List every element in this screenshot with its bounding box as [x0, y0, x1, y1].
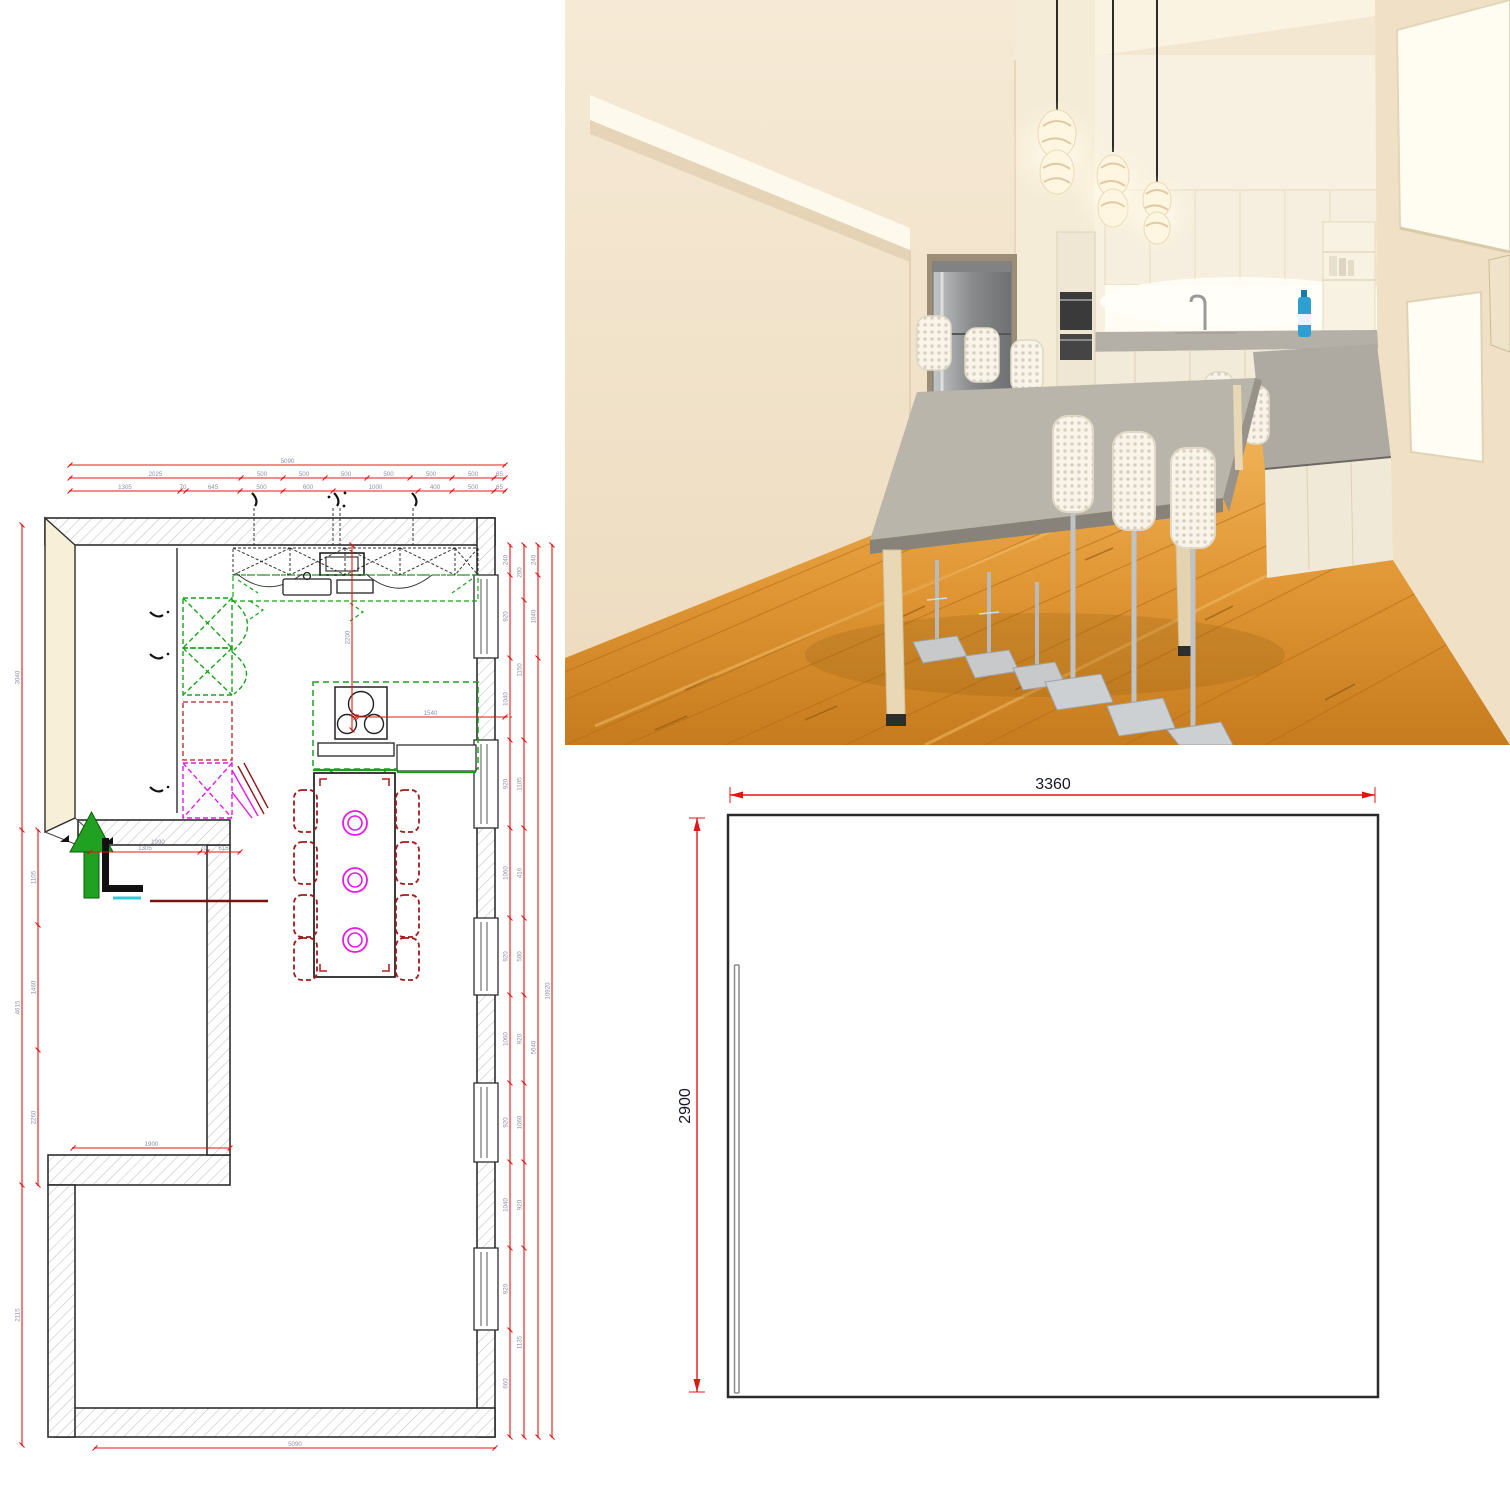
window-counter [1253, 344, 1393, 578]
tall-cabinet-column [183, 598, 248, 695]
dimension-label: 615 [218, 845, 229, 852]
dimension-chain: 2001150110541650092010609201135 [517, 543, 527, 1440]
dimension-label: 500 [257, 471, 268, 478]
dimension-chain: 130570645500600100040050065 [68, 484, 508, 494]
dimension-label: 920 [503, 778, 510, 789]
dimension-label: 500 [341, 471, 352, 478]
window-light [1397, 0, 1510, 252]
dimension-label: 1105 [31, 870, 38, 884]
dimension-chain: 2409201040920106092010609201040920660 [503, 543, 513, 1440]
dimension-label: 920 [517, 1033, 524, 1044]
dimension-label: 65 [496, 471, 503, 478]
dimension-label: 1305 [138, 845, 152, 852]
corner-cabinet [183, 763, 268, 818]
dimension-label: 1040 [531, 609, 538, 623]
dimension-label: 2260 [31, 1110, 38, 1124]
dimension-label: 660 [503, 1378, 510, 1389]
dimension-label: 920 [503, 1117, 510, 1128]
exterior-walls [45, 518, 495, 1437]
dimension-label: 240 [503, 554, 510, 565]
dimension-label: 600 [303, 484, 314, 491]
dimension-chain: 10920 [545, 543, 555, 1440]
dimension-label: 70 [180, 484, 187, 491]
dimension-label: 1060 [503, 1032, 510, 1046]
elevation-width-label: 3360 [1035, 776, 1071, 793]
wall-light-symbol [150, 611, 169, 792]
dimension-label: 1540 [424, 710, 438, 717]
dimension-label: 500 [256, 484, 267, 491]
dimension-label: 920 [503, 951, 510, 962]
entry-furniture-marks [102, 838, 268, 901]
dimension-chain: 5090 [68, 458, 508, 468]
dimension-label: 920 [503, 611, 510, 622]
sink [283, 573, 373, 596]
dimension-label: 1060 [503, 866, 510, 880]
elevation-height-label: 2900 [677, 1088, 694, 1124]
dimension-label: 1060 [517, 1115, 524, 1129]
dimension-chain: 110514602260 [31, 828, 41, 1188]
dimension-label: 200 [517, 567, 524, 578]
dimension-label: 2115 [15, 1308, 22, 1322]
dimension-chain: 24010405640 [531, 543, 541, 1440]
dimension-label: 5090 [288, 1441, 302, 1448]
extractor-hood [320, 553, 364, 575]
dimension-label: 500 [383, 471, 394, 478]
dimension-label: 1135 [517, 1335, 524, 1349]
dimension-label: 5640 [531, 1040, 538, 1054]
dimension-chain: 304046152115 [15, 523, 25, 1448]
dimension-label: 3040 [15, 670, 22, 684]
dimension-label: 500 [468, 471, 479, 478]
wall-frame [1489, 255, 1510, 352]
dimension-label: 500 [468, 484, 479, 491]
dimension-label: 1040 [503, 1198, 510, 1212]
island-drawer [318, 743, 394, 756]
island-side-cabinet [397, 745, 476, 771]
kitchen-design-screenshot: 1990 50902025500500500500500500651305706… [0, 0, 1510, 1510]
window-light [1407, 292, 1483, 462]
cabinet-elevation: 3360 2900 [660, 760, 1400, 1440]
dimension-label: 416 [517, 867, 524, 878]
dimension-label: 5090 [281, 458, 295, 465]
dimension-label: 1460 [31, 980, 38, 994]
dimension-label: 500 [426, 471, 437, 478]
dimension-label: 400 [430, 484, 441, 491]
dimension-label: 1900 [145, 1141, 159, 1148]
dimension-label: 1305 [118, 484, 132, 491]
pendant-light [1117, 174, 1197, 254]
kitchen-island [313, 682, 478, 785]
entry-wall-panel [45, 518, 113, 846]
dimension-label: 920 [503, 1283, 510, 1294]
dimension-label: 4615 [15, 1000, 22, 1014]
dimension-label: 70 [200, 845, 207, 852]
dimension-label: 920 [517, 1199, 524, 1210]
dimension-label: 1150 [517, 663, 524, 677]
dimension-label: 65 [496, 484, 503, 491]
dimension-chain: 5090 [93, 1441, 498, 1451]
interior-dim-label: 1990 [151, 839, 165, 846]
dimension-label: 645 [208, 484, 219, 491]
pantry-cabinet [183, 702, 232, 760]
dimension-chain: 202550050050050050050065 [68, 471, 508, 481]
open-shelf [1323, 222, 1375, 332]
dimension-label: 1040 [503, 692, 510, 706]
dimension-label: 1105 [517, 777, 524, 791]
dimension-label: 240 [531, 554, 538, 565]
dimension-label: 2025 [149, 471, 163, 478]
kitchen-3d-render [565, 0, 1510, 745]
dimension-label: 1000 [369, 484, 383, 491]
floor-plan: 1990 50902025500500500500500500651305706… [0, 440, 570, 1480]
dimension-label: 500 [299, 471, 310, 478]
dimension-label: 500 [517, 951, 524, 962]
dimension-label: 2200 [345, 630, 352, 644]
elevation-panel [728, 815, 1378, 1397]
dimension-label: 10920 [545, 982, 552, 1000]
